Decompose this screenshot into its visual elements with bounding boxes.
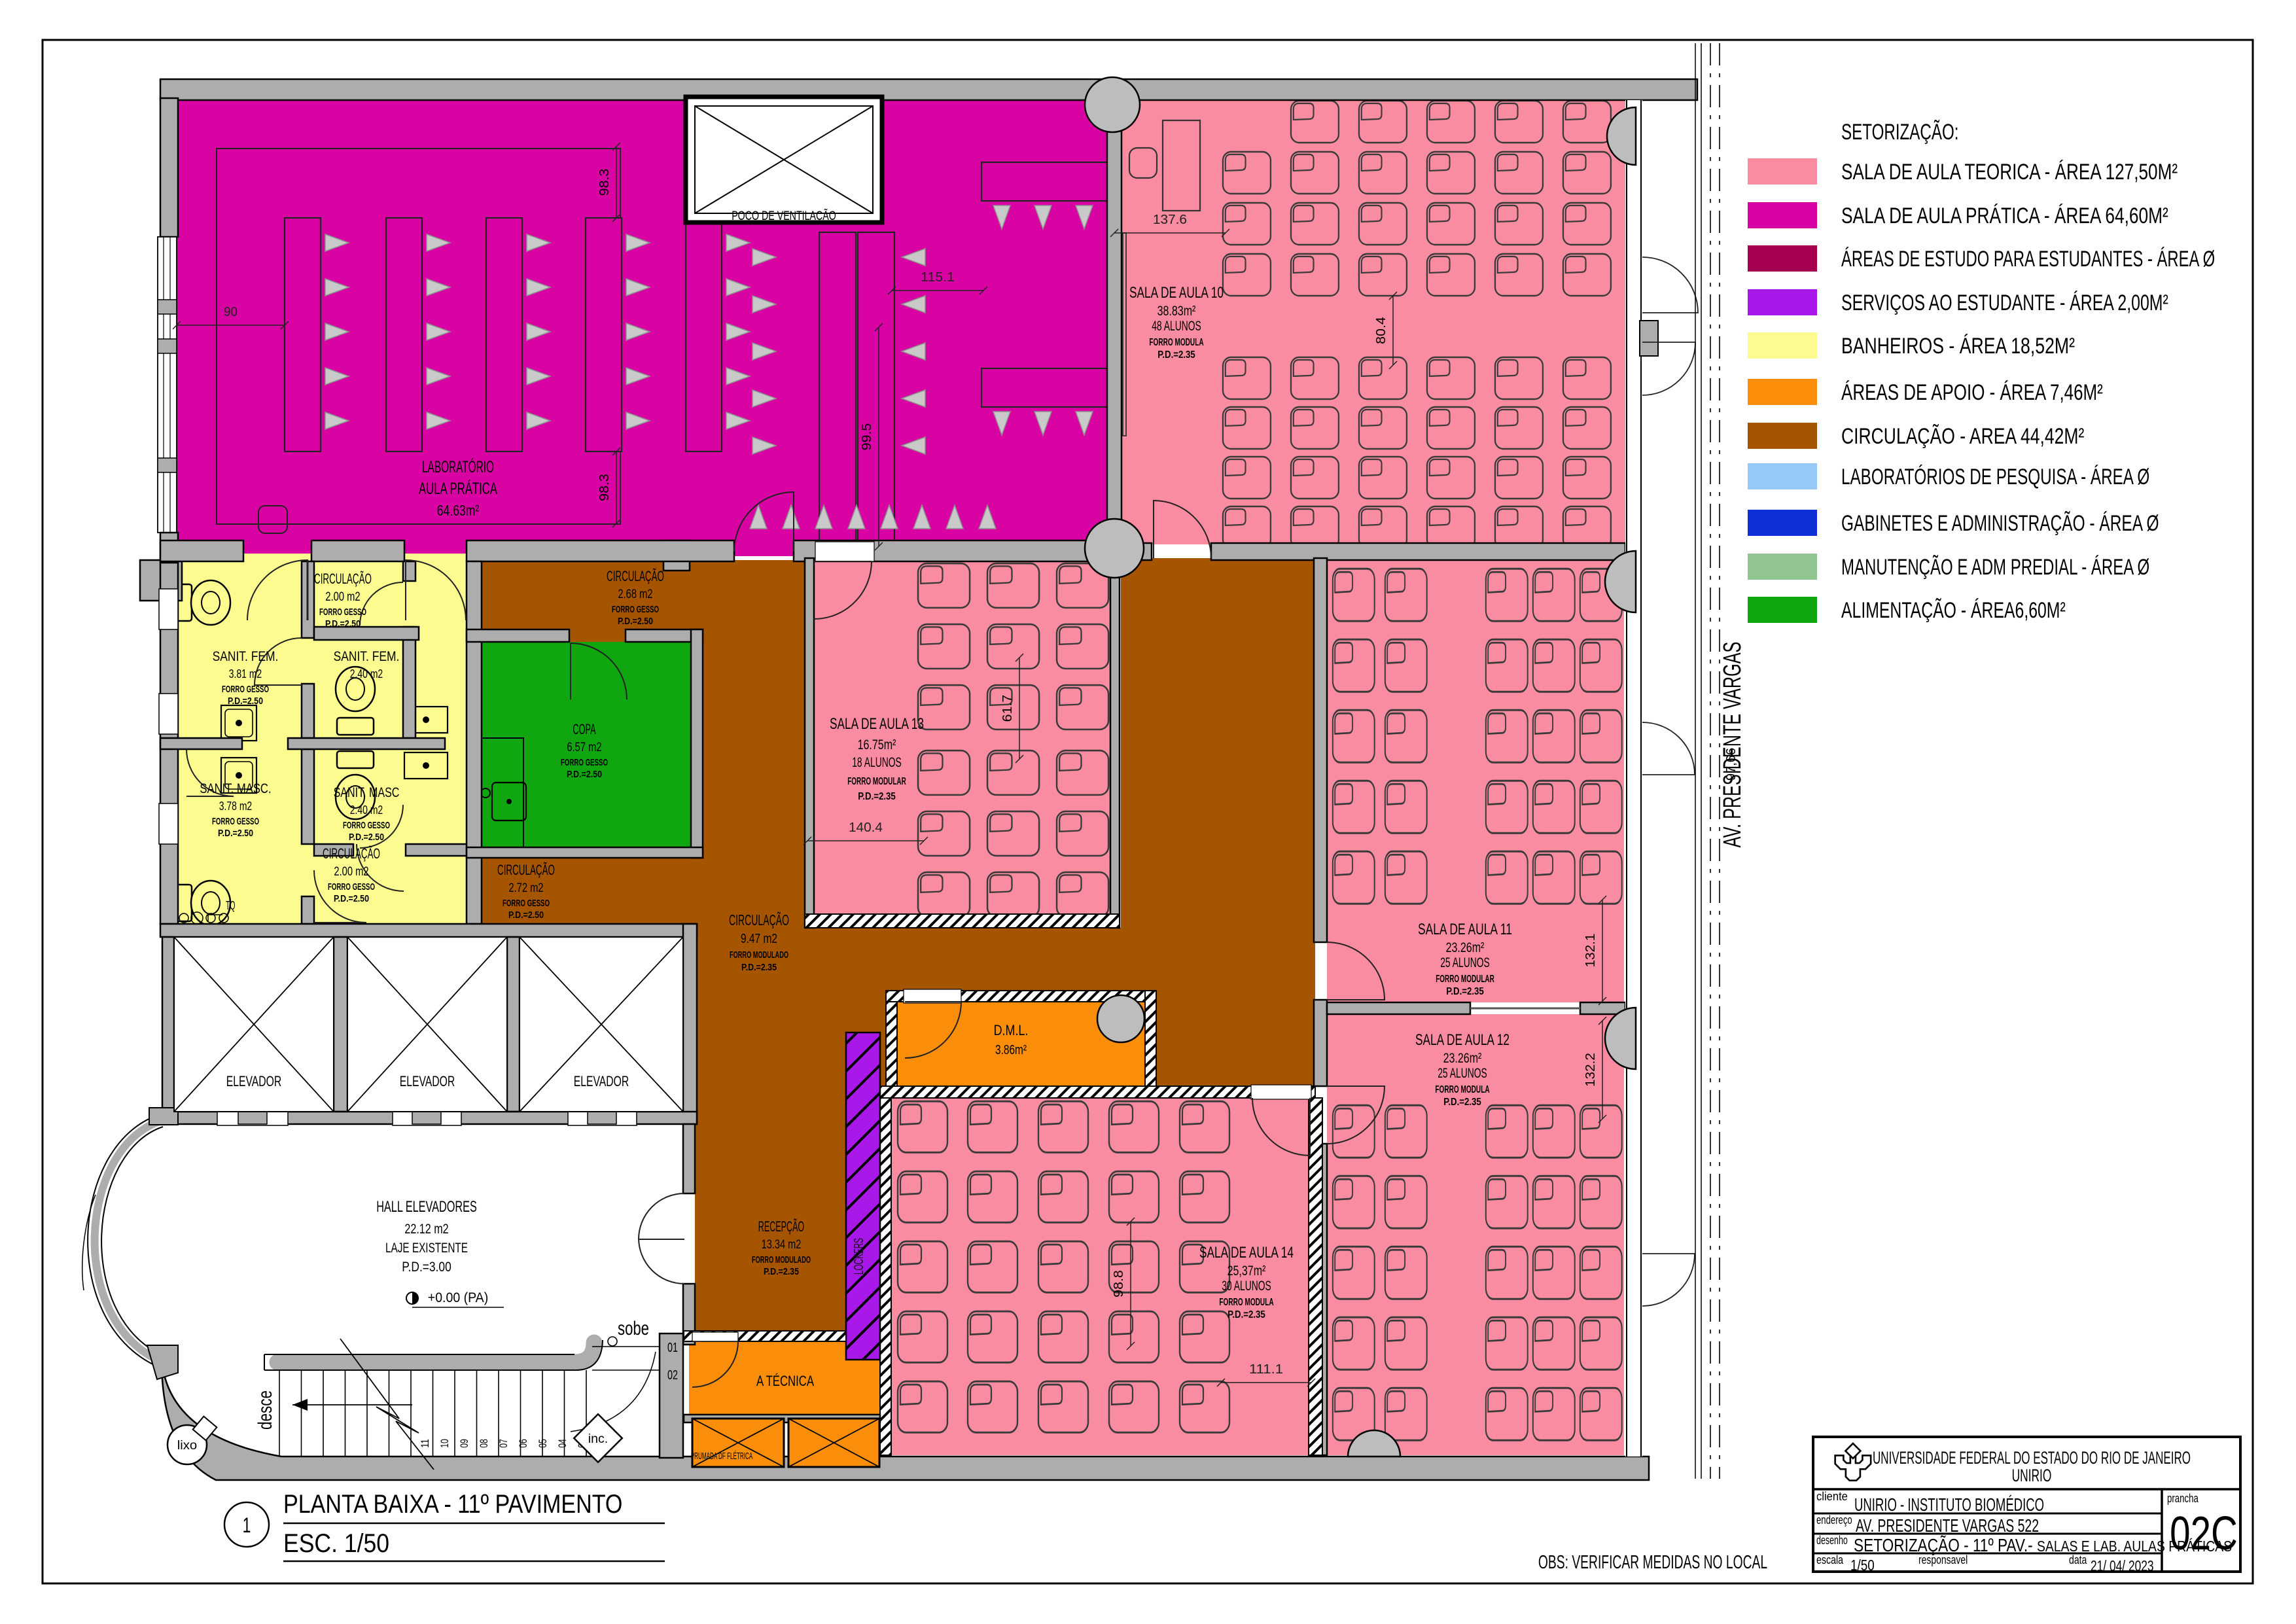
svg-text:HALL ELEVADORES: HALL ELEVADORES	[376, 1198, 477, 1216]
svg-text:LABORATÓRIO: LABORATÓRIO	[422, 457, 494, 476]
svg-text:P.D.=2.50: P.D.=2.50	[618, 616, 653, 627]
svg-text:P.D.=2.50: P.D.=2.50	[349, 832, 384, 843]
svg-text:16.75m²: 16.75m²	[858, 737, 896, 752]
svg-text:+0.00 (PA): +0.00 (PA)	[428, 1290, 488, 1305]
svg-text:GABINETES E ADMINISTRAÇÃO - ÁR: GABINETES E ADMINISTRAÇÃO - ÁREA Ø	[1841, 511, 2159, 536]
svg-text:P.D.=2.35: P.D.=2.35	[741, 962, 777, 973]
svg-text:02C: 02C	[2170, 1508, 2238, 1560]
svg-text:OBS: VERIFICAR MEDIDAS NO: OBS: VERIFICAR MEDIDAS NO LOCAL	[1538, 1552, 1767, 1573]
svg-text:SANIT. MASC.: SANIT. MASC.	[200, 781, 271, 796]
svg-text:10: 10	[438, 1439, 451, 1448]
svg-text:P.D.=2.50: P.D.=2.50	[567, 769, 602, 780]
svg-text:MANUTENÇÃO E ADM PREDIAL - ÁRE: MANUTENÇÃO E ADM PREDIAL - ÁREA Ø	[1841, 555, 2149, 580]
svg-text:CIRCULAÇÃO: CIRCULAÇÃO	[729, 911, 789, 928]
svg-text:responsavel: responsavel	[1918, 1553, 1968, 1566]
svg-text:PRUMADA DF FLÉTRICA: PRUMADA DF FLÉTRICA	[691, 1451, 753, 1462]
svg-text:38.83m²: 38.83m²	[1157, 304, 1196, 319]
svg-text:data: data	[2069, 1553, 2087, 1566]
svg-text:SALA DE AULA 10: SALA DE AULA 10	[1129, 284, 1224, 302]
svg-text:ALIMENTAÇÃO - ÁREA6,60M²: ALIMENTAÇÃO - ÁREA6,60M²	[1841, 598, 2066, 623]
svg-text:3.81 m2: 3.81 m2	[229, 667, 262, 680]
svg-text:AV. PRESIDENTE VARGAS 522: AV. PRESIDENTE VARGAS 522	[1856, 1515, 2039, 1536]
svg-text:98.8: 98.8	[1112, 1270, 1126, 1297]
svg-text:115.1: 115.1	[921, 270, 955, 285]
svg-text:6.57 m2: 6.57 m2	[567, 741, 601, 754]
svg-text:2.68 m2: 2.68 m2	[618, 588, 652, 601]
svg-text:cliente: cliente	[1816, 1490, 1848, 1503]
svg-text:02: 02	[667, 1368, 678, 1383]
svg-text:3.86m²: 3.86m²	[995, 1043, 1027, 1057]
svg-text:P.D.=3.00: P.D.=3.00	[402, 1260, 451, 1275]
svg-text:ESC. 1/50: ESC. 1/50	[283, 1529, 389, 1558]
svg-text:CIRCULAÇÃO - AREA 44,42M²: CIRCULAÇÃO - AREA 44,42M²	[1841, 424, 2084, 449]
svg-text:BANHEIROS - ÁREA 18,52M²: BANHEIROS - ÁREA 18,52M²	[1841, 334, 2075, 359]
svg-text:25 ALUNOS: 25 ALUNOS	[1440, 955, 1490, 970]
svg-text:SALA DE AULA 12: SALA DE AULA 12	[1415, 1031, 1510, 1049]
svg-text:05: 05	[537, 1439, 549, 1448]
svg-text:98.3: 98.3	[597, 474, 612, 501]
svg-text:23.26m²: 23.26m²	[1446, 940, 1485, 955]
svg-text:SANIT. FEM.: SANIT. FEM.	[213, 649, 279, 664]
svg-text:lixo: lixo	[177, 1439, 197, 1453]
svg-text:P.D.=2.35: P.D.=2.35	[1446, 986, 1484, 997]
svg-text:P.D.=2.35: P.D.=2.35	[858, 791, 896, 802]
svg-text:SANIT. MASC: SANIT. MASC	[334, 785, 400, 800]
svg-text:9.47 m2: 9.47 m2	[741, 932, 777, 946]
svg-text:ELEVADOR: ELEVADOR	[574, 1073, 629, 1089]
svg-text:ÁREAS DE ESTUDO PARA ESTUDANTE: ÁREAS DE ESTUDO PARA ESTUDANTES - ÁREA Ø	[1841, 247, 2215, 272]
svg-text:23.26m²: 23.26m²	[1443, 1051, 1482, 1066]
svg-text:P.D.=2.35: P.D.=2.35	[1227, 1309, 1265, 1320]
svg-text:POÇO DE VENTILAÇÃO: POÇO DE VENTILAÇÃO	[732, 209, 836, 223]
svg-text:A TÉCNICA: A TÉCNICA	[756, 1373, 814, 1389]
svg-text:06: 06	[517, 1439, 529, 1448]
svg-text:SANIT. FEM.: SANIT. FEM.	[334, 649, 400, 664]
svg-text:D.M.L.: D.M.L.	[994, 1022, 1029, 1038]
svg-text:sobe: sobe	[618, 1318, 649, 1339]
svg-text:132.1: 132.1	[1583, 934, 1598, 968]
svg-text:TQ: TQ	[226, 899, 235, 912]
svg-text:3.78 m2: 3.78 m2	[219, 800, 252, 813]
svg-text:97,66: 97,66	[1724, 748, 1739, 781]
svg-text:FORRO MODULA: FORRO MODULA	[1219, 1297, 1273, 1308]
svg-text:LAJE EXISTENTE: LAJE EXISTENTE	[385, 1241, 468, 1256]
svg-text:ÁREAS DE APOIO - ÁREA 7,46M²: ÁREAS DE APOIO - ÁREA 7,46M²	[1841, 380, 2103, 405]
svg-text:FORRO MODULADO: FORRO MODULADO	[730, 949, 788, 961]
svg-text:21/ 04/ 2023: 21/ 04/ 2023	[2091, 1557, 2154, 1574]
svg-text:AULA PRÁTICA: AULA PRÁTICA	[419, 479, 497, 498]
svg-text:61.7: 61.7	[1000, 695, 1015, 722]
svg-text:SETORIZAÇÃO - 11º PAV.-: SETORIZAÇÃO - 11º PAV.-	[1854, 1535, 2033, 1555]
svg-text:endereço: endereço	[1816, 1513, 1852, 1527]
svg-text:CIRCULAÇÃO: CIRCULAÇÃO	[497, 862, 555, 878]
svg-text:P.D.=2.50: P.D.=2.50	[325, 618, 361, 629]
svg-text:FORRO MODULAR: FORRO MODULAR	[847, 776, 906, 787]
svg-text:desce: desce	[255, 1390, 276, 1430]
svg-text:UNIVERSIDADE FEDERAL DO ESTADO: UNIVERSIDADE FEDERAL DO ESTADO DO RIO DE…	[1873, 1448, 2191, 1468]
svg-text:CIRCULAÇÃO: CIRCULAÇÃO	[323, 845, 380, 862]
svg-text:2.40 m2: 2.40 m2	[350, 667, 383, 680]
svg-text:09: 09	[458, 1439, 470, 1448]
svg-text:99.5: 99.5	[860, 423, 874, 451]
svg-text:UNIRIO: UNIRIO	[2012, 1466, 2052, 1485]
svg-text:2.00 m2: 2.00 m2	[325, 590, 360, 604]
svg-text:1/50: 1/50	[1850, 1557, 1875, 1574]
svg-text:LOCKERS: LOCKERS	[852, 1238, 866, 1275]
svg-text:FORRO MODULAR: FORRO MODULAR	[1436, 974, 1494, 985]
svg-text:64.63m²: 64.63m²	[437, 502, 480, 519]
svg-text:PLANTA BAIXA - 11º PAVIMEN: PLANTA BAIXA - 11º PAVIMENTO	[283, 1490, 622, 1519]
svg-text:SALA DE AULA 14: SALA DE AULA 14	[1199, 1244, 1294, 1262]
svg-text:SERVIÇOS AO ESTUDANTE - ÁREA 2: SERVIÇOS AO ESTUDANTE - ÁREA 2,00M²	[1841, 291, 2168, 315]
svg-text:P.D.=2.50: P.D.=2.50	[508, 909, 544, 921]
svg-text:ELEVADOR: ELEVADOR	[226, 1073, 281, 1089]
svg-text:80.4: 80.4	[1374, 317, 1388, 344]
svg-text:P.D.=2.35: P.D.=2.35	[1443, 1097, 1481, 1108]
svg-text:FORRO GESSO: FORRO GESSO	[328, 881, 375, 892]
svg-text:P.D.=2.35: P.D.=2.35	[764, 1266, 799, 1277]
svg-text:98.3: 98.3	[597, 169, 612, 196]
svg-text:FORRO GESSO: FORRO GESSO	[503, 898, 550, 909]
svg-text:13.34 m2: 13.34 m2	[762, 1238, 802, 1252]
svg-text:P.D.=2.35: P.D.=2.35	[1157, 349, 1195, 361]
svg-text:18 ALUNOS: 18 ALUNOS	[852, 755, 902, 770]
svg-text:FORRO GESSO: FORRO GESSO	[319, 607, 366, 618]
svg-text:30 ALUNOS: 30 ALUNOS	[1222, 1279, 1271, 1294]
svg-text:P.D.=2.50: P.D.=2.50	[334, 893, 369, 904]
svg-text:escala: escala	[1816, 1553, 1844, 1566]
svg-text:inc.: inc.	[588, 1432, 608, 1446]
svg-text:COPA: COPA	[573, 721, 595, 737]
svg-text:CIRCULAÇÃO: CIRCULAÇÃO	[314, 571, 372, 587]
svg-text:desenho: desenho	[1816, 1534, 1848, 1547]
svg-text:08: 08	[478, 1439, 490, 1448]
svg-text:FORRO MODULA: FORRO MODULA	[1149, 337, 1203, 348]
svg-text:FORRO GESSO: FORRO GESSO	[222, 684, 269, 695]
svg-text:RECEPÇÃO: RECEPÇÃO	[758, 1218, 804, 1235]
svg-text:07: 07	[497, 1439, 510, 1448]
svg-text:2.40 m2: 2.40 m2	[350, 803, 383, 817]
svg-text:UNIRIO - INSTITUTO BIOMÉDICO: UNIRIO - INSTITUTO BIOMÉDICO	[1854, 1494, 2044, 1515]
svg-text:1: 1	[243, 1513, 251, 1537]
svg-text:FORRO GESSO: FORRO GESSO	[612, 604, 659, 615]
svg-text:FORRO MODULA: FORRO MODULA	[1435, 1084, 1489, 1095]
svg-text:11: 11	[419, 1439, 431, 1448]
svg-text:90: 90	[224, 305, 238, 319]
svg-text:prancha: prancha	[2167, 1492, 2199, 1505]
svg-text:2.72 m2: 2.72 m2	[508, 881, 543, 895]
svg-text:25,37m²: 25,37m²	[1227, 1263, 1266, 1279]
svg-text:SALA DE AULA 13: SALA DE AULA 13	[830, 715, 924, 733]
svg-text:LABORATÓRIOS DE PESQUISA - ÁRE: LABORATÓRIOS DE PESQUISA - ÁREA Ø	[1841, 465, 2149, 489]
svg-text:140.4: 140.4	[849, 821, 883, 835]
svg-text:FORRO GESSO: FORRO GESSO	[343, 820, 390, 831]
svg-text:P.D.=2.50: P.D.=2.50	[228, 696, 263, 707]
svg-text:137.6: 137.6	[1153, 213, 1187, 227]
svg-text:SETORIZAÇÃO:: SETORIZAÇÃO:	[1841, 120, 1959, 145]
svg-text:SALA DE AULA 11: SALA DE AULA 11	[1418, 921, 1512, 938]
svg-text:01: 01	[667, 1341, 678, 1355]
svg-text:P.D.=2.50: P.D.=2.50	[218, 828, 253, 839]
svg-text:AV. PRESIDENTE VARGAS: AV. PRESIDENTE VARGAS	[1719, 642, 1746, 848]
svg-text:04: 04	[556, 1439, 569, 1448]
svg-text:111.1: 111.1	[1249, 1362, 1283, 1377]
svg-text:48 ALUNOS: 48 ALUNOS	[1152, 319, 1201, 334]
svg-text:25 ALUNOS: 25 ALUNOS	[1438, 1066, 1487, 1081]
svg-text:FORRO MODULADO: FORRO MODULADO	[752, 1254, 811, 1265]
svg-text:SALA DE AULA PRÁTICA - ÁREA 64: SALA DE AULA PRÁTICA - ÁREA 64,60M²	[1841, 203, 2168, 228]
svg-text:SALA DE AULA TEORICA - ÁREA 12: SALA DE AULA TEORICA - ÁREA 127,50M²	[1841, 160, 2178, 185]
svg-text:2.00 m2: 2.00 m2	[334, 865, 368, 879]
svg-text:FORRO GESSO: FORRO GESSO	[212, 816, 259, 827]
svg-text:ELEVADOR: ELEVADOR	[400, 1073, 455, 1089]
svg-text:22.12 m2: 22.12 m2	[404, 1222, 448, 1237]
svg-text:FORRO GESSO: FORRO GESSO	[561, 757, 608, 768]
svg-text:132.2: 132.2	[1583, 1053, 1598, 1087]
svg-text:CIRCULAÇÃO: CIRCULAÇÃO	[607, 568, 664, 584]
